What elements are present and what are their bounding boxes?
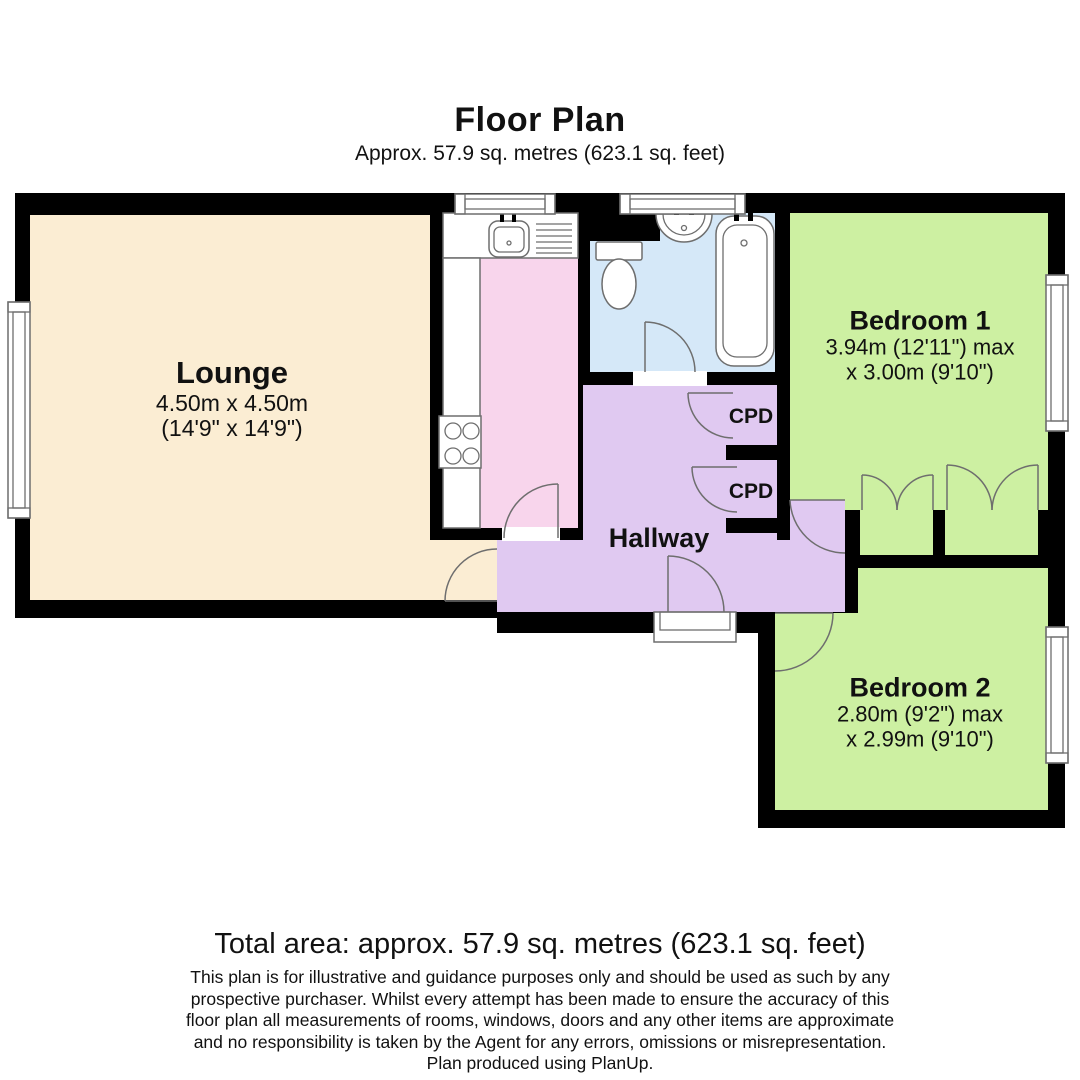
disclaimer-line-3: floor plan all measurements of rooms, wi… bbox=[0, 1010, 1080, 1032]
floor-plan-drawing bbox=[0, 0, 1080, 1080]
bedroom1-name: Bedroom 1 bbox=[826, 305, 1015, 335]
bedroom1-dims-imperial: x 3.00m (9'10") bbox=[826, 360, 1015, 385]
floor-plan-page: Floor Plan Approx. 57.9 sq. metres (623.… bbox=[0, 0, 1080, 1080]
toilet-bowl bbox=[602, 259, 636, 309]
hallway-label: Hallway bbox=[609, 523, 710, 553]
bathtub bbox=[716, 216, 774, 366]
bedroom2-label: Bedroom 2 2.80m (9'2") max x 2.99m (9'10… bbox=[837, 672, 1003, 751]
front-door-threshold bbox=[654, 612, 736, 642]
bathroom-doorway-gap bbox=[633, 371, 707, 386]
lounge-dims-metric: 4.50m x 4.50m bbox=[156, 391, 308, 417]
bathroom-duct bbox=[590, 213, 660, 241]
disclaimer-line-5: Plan produced using PlanUp. bbox=[0, 1053, 1080, 1075]
bedroom1-window bbox=[1046, 275, 1068, 431]
bedroom2-window bbox=[1046, 627, 1068, 763]
bedroom2-dims-metric: 2.80m (9'2") max bbox=[837, 702, 1003, 727]
bedroom1-dims-metric: 3.94m (12'11") max bbox=[826, 335, 1015, 360]
hallway-name: Hallway bbox=[609, 523, 710, 553]
bedroom2-dims-imperial: x 2.99m (9'10") bbox=[837, 727, 1003, 752]
disclaimer-line-1: This plan is for illustrative and guidan… bbox=[0, 967, 1080, 989]
wardrobe1-floor bbox=[860, 510, 933, 555]
bathroom-window bbox=[620, 194, 745, 214]
lounge-window bbox=[8, 302, 30, 518]
hallway-floor-nook bbox=[790, 500, 845, 612]
disclaimer-line-2: prospective purchaser. Whilst every atte… bbox=[0, 989, 1080, 1011]
bedroom1-label: Bedroom 1 3.94m (12'11") max x 3.00m (9'… bbox=[826, 305, 1015, 384]
bathtub-tap-right bbox=[748, 210, 753, 221]
kitchen-floor bbox=[480, 258, 578, 528]
disclaimer-line-4: and no responsibility is taken by the Ag… bbox=[0, 1032, 1080, 1054]
disclaimer-text: This plan is for illustrative and guidan… bbox=[0, 967, 1080, 1075]
kitchen-doorway-gap bbox=[502, 527, 560, 541]
kitchen-window bbox=[455, 194, 555, 214]
cupboard-divider-wall-1 bbox=[726, 445, 777, 460]
lounge-name: Lounge bbox=[156, 356, 308, 391]
kitchen-counter-left bbox=[443, 258, 480, 528]
cupboard1-label: CPD bbox=[729, 405, 773, 429]
wardrobe2-floor bbox=[945, 510, 1038, 555]
toilet-cistern bbox=[596, 242, 642, 260]
cupboard2-label: CPD bbox=[729, 480, 773, 504]
lounge-dims-imperial: (14'9" x 14'9") bbox=[156, 416, 308, 442]
lounge-label: Lounge 4.50m x 4.50m (14'9" x 14'9") bbox=[156, 356, 308, 442]
total-area-text: Total area: approx. 57.9 sq. metres (623… bbox=[0, 928, 1080, 961]
cupboard-divider-wall-2 bbox=[726, 518, 777, 533]
bedroom2-name: Bedroom 2 bbox=[837, 672, 1003, 702]
